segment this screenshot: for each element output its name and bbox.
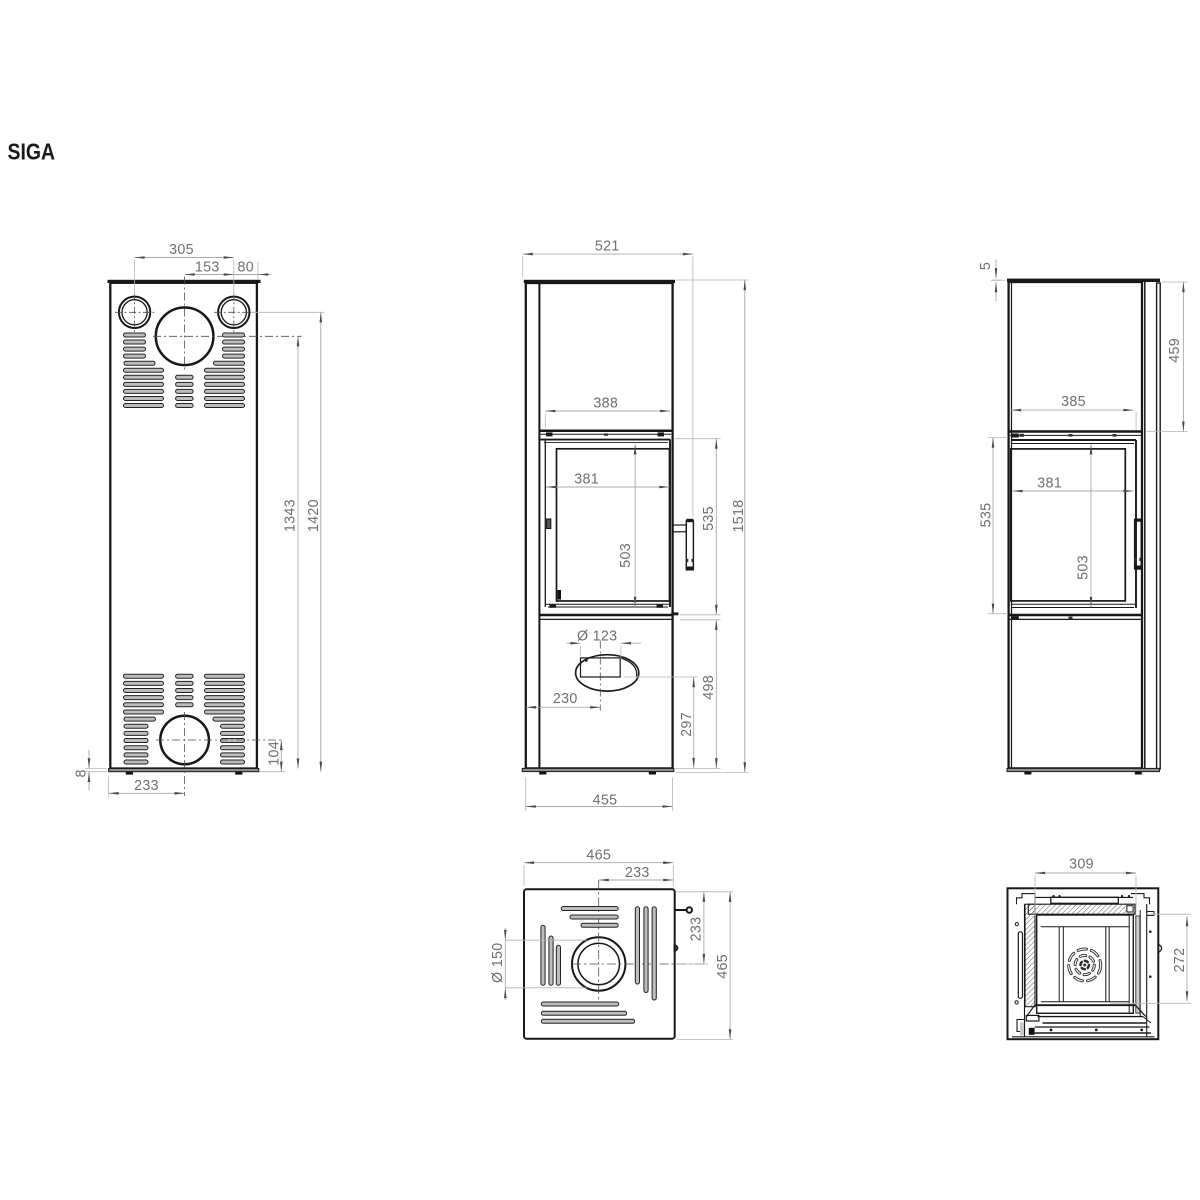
svg-text:521: 521 <box>595 238 620 254</box>
svg-text:503: 503 <box>1075 555 1091 580</box>
svg-text:305: 305 <box>169 242 194 258</box>
svg-text:SIGA: SIGA <box>8 139 56 165</box>
svg-text:8: 8 <box>74 769 90 777</box>
svg-text:465: 465 <box>715 954 731 979</box>
svg-text:385: 385 <box>1061 394 1086 410</box>
svg-text:465: 465 <box>586 848 611 864</box>
svg-text:455: 455 <box>593 793 618 809</box>
svg-text:5: 5 <box>978 262 994 270</box>
svg-text:1343: 1343 <box>283 499 299 532</box>
svg-text:153: 153 <box>195 260 220 276</box>
svg-text:297: 297 <box>679 712 695 737</box>
svg-text:503: 503 <box>618 543 634 568</box>
svg-text:381: 381 <box>1037 476 1062 492</box>
svg-text:272: 272 <box>1172 948 1188 973</box>
svg-text:80: 80 <box>238 260 255 276</box>
svg-text:459: 459 <box>1167 338 1183 363</box>
svg-text:233: 233 <box>134 778 159 794</box>
svg-text:230: 230 <box>553 691 578 707</box>
svg-text:388: 388 <box>593 396 618 412</box>
svg-text:104: 104 <box>267 741 283 766</box>
svg-text:309: 309 <box>1069 857 1094 873</box>
svg-text:381: 381 <box>574 471 599 487</box>
svg-text:535: 535 <box>978 503 994 528</box>
svg-text:535: 535 <box>701 506 717 531</box>
svg-text:498: 498 <box>701 675 717 700</box>
svg-text:1420: 1420 <box>306 499 322 532</box>
svg-text:Ø 150: Ø 150 <box>490 942 506 982</box>
svg-text:233: 233 <box>625 865 650 881</box>
svg-text:233: 233 <box>688 917 704 942</box>
svg-text:Ø 123: Ø 123 <box>577 629 617 645</box>
svg-text:1518: 1518 <box>731 499 747 532</box>
